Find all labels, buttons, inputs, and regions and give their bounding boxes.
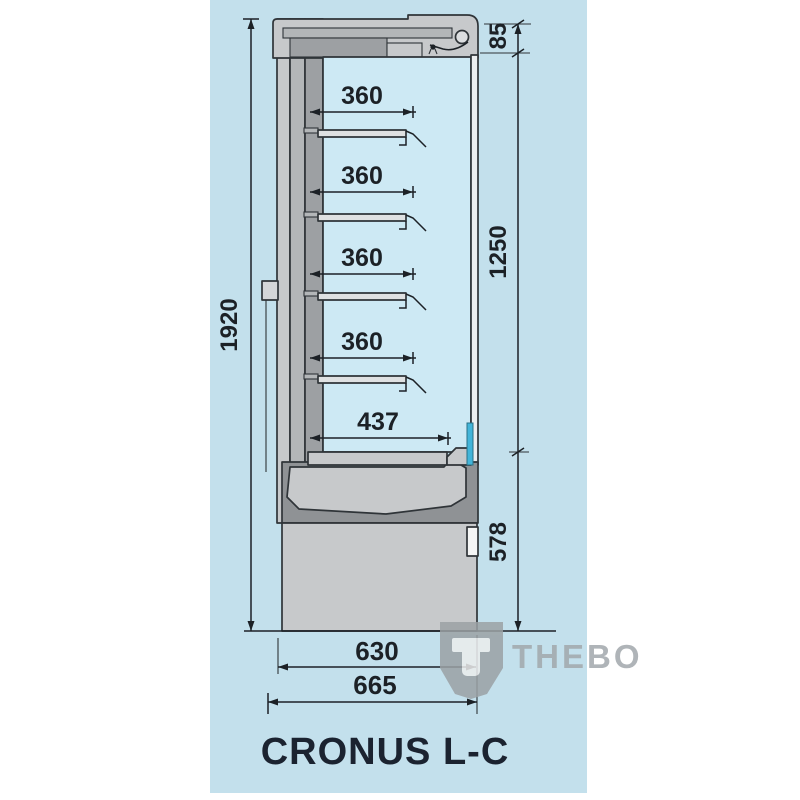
door-bottom-seal (467, 423, 473, 465)
top-assembly (273, 15, 478, 58)
dim-base-depth-label: 630 (355, 636, 398, 666)
dim-shelf-2: 360 (341, 162, 383, 190)
dim-bottom-shelf-label: 437 (357, 408, 399, 436)
dim-total-depth-label: 665 (353, 670, 396, 700)
pedestal (282, 523, 478, 631)
door-closer-roller-icon (456, 31, 469, 44)
dim-shelf-4: 360 (341, 328, 383, 356)
ceiling-step (387, 43, 422, 57)
brand-text: THEBO (512, 638, 643, 675)
back-wall (277, 19, 323, 523)
dim-total-height-label: 1920 (216, 298, 243, 351)
pedestal-vent (467, 527, 478, 556)
dim-glass-section-label: 1250 (485, 225, 512, 278)
glass-door (471, 55, 478, 465)
wall-spacer (262, 281, 278, 300)
drawing-page: 360 360 360 360 437 1920 85 1250 57 (0, 0, 800, 800)
dim-shelf-3: 360 (341, 244, 383, 272)
dim-top-section-label: 85 (485, 23, 512, 50)
dim-base-section-label: 578 (485, 522, 512, 562)
technical-drawing: 360 360 360 360 437 1920 85 1250 57 (0, 0, 800, 800)
logo-t-stem (462, 638, 480, 676)
dim-shelf-1: 360 (341, 82, 383, 110)
model-title: CRONUS L-C (261, 731, 510, 773)
air-duct (287, 459, 466, 514)
interior-floor (308, 452, 447, 465)
closer-pivot (430, 44, 435, 49)
